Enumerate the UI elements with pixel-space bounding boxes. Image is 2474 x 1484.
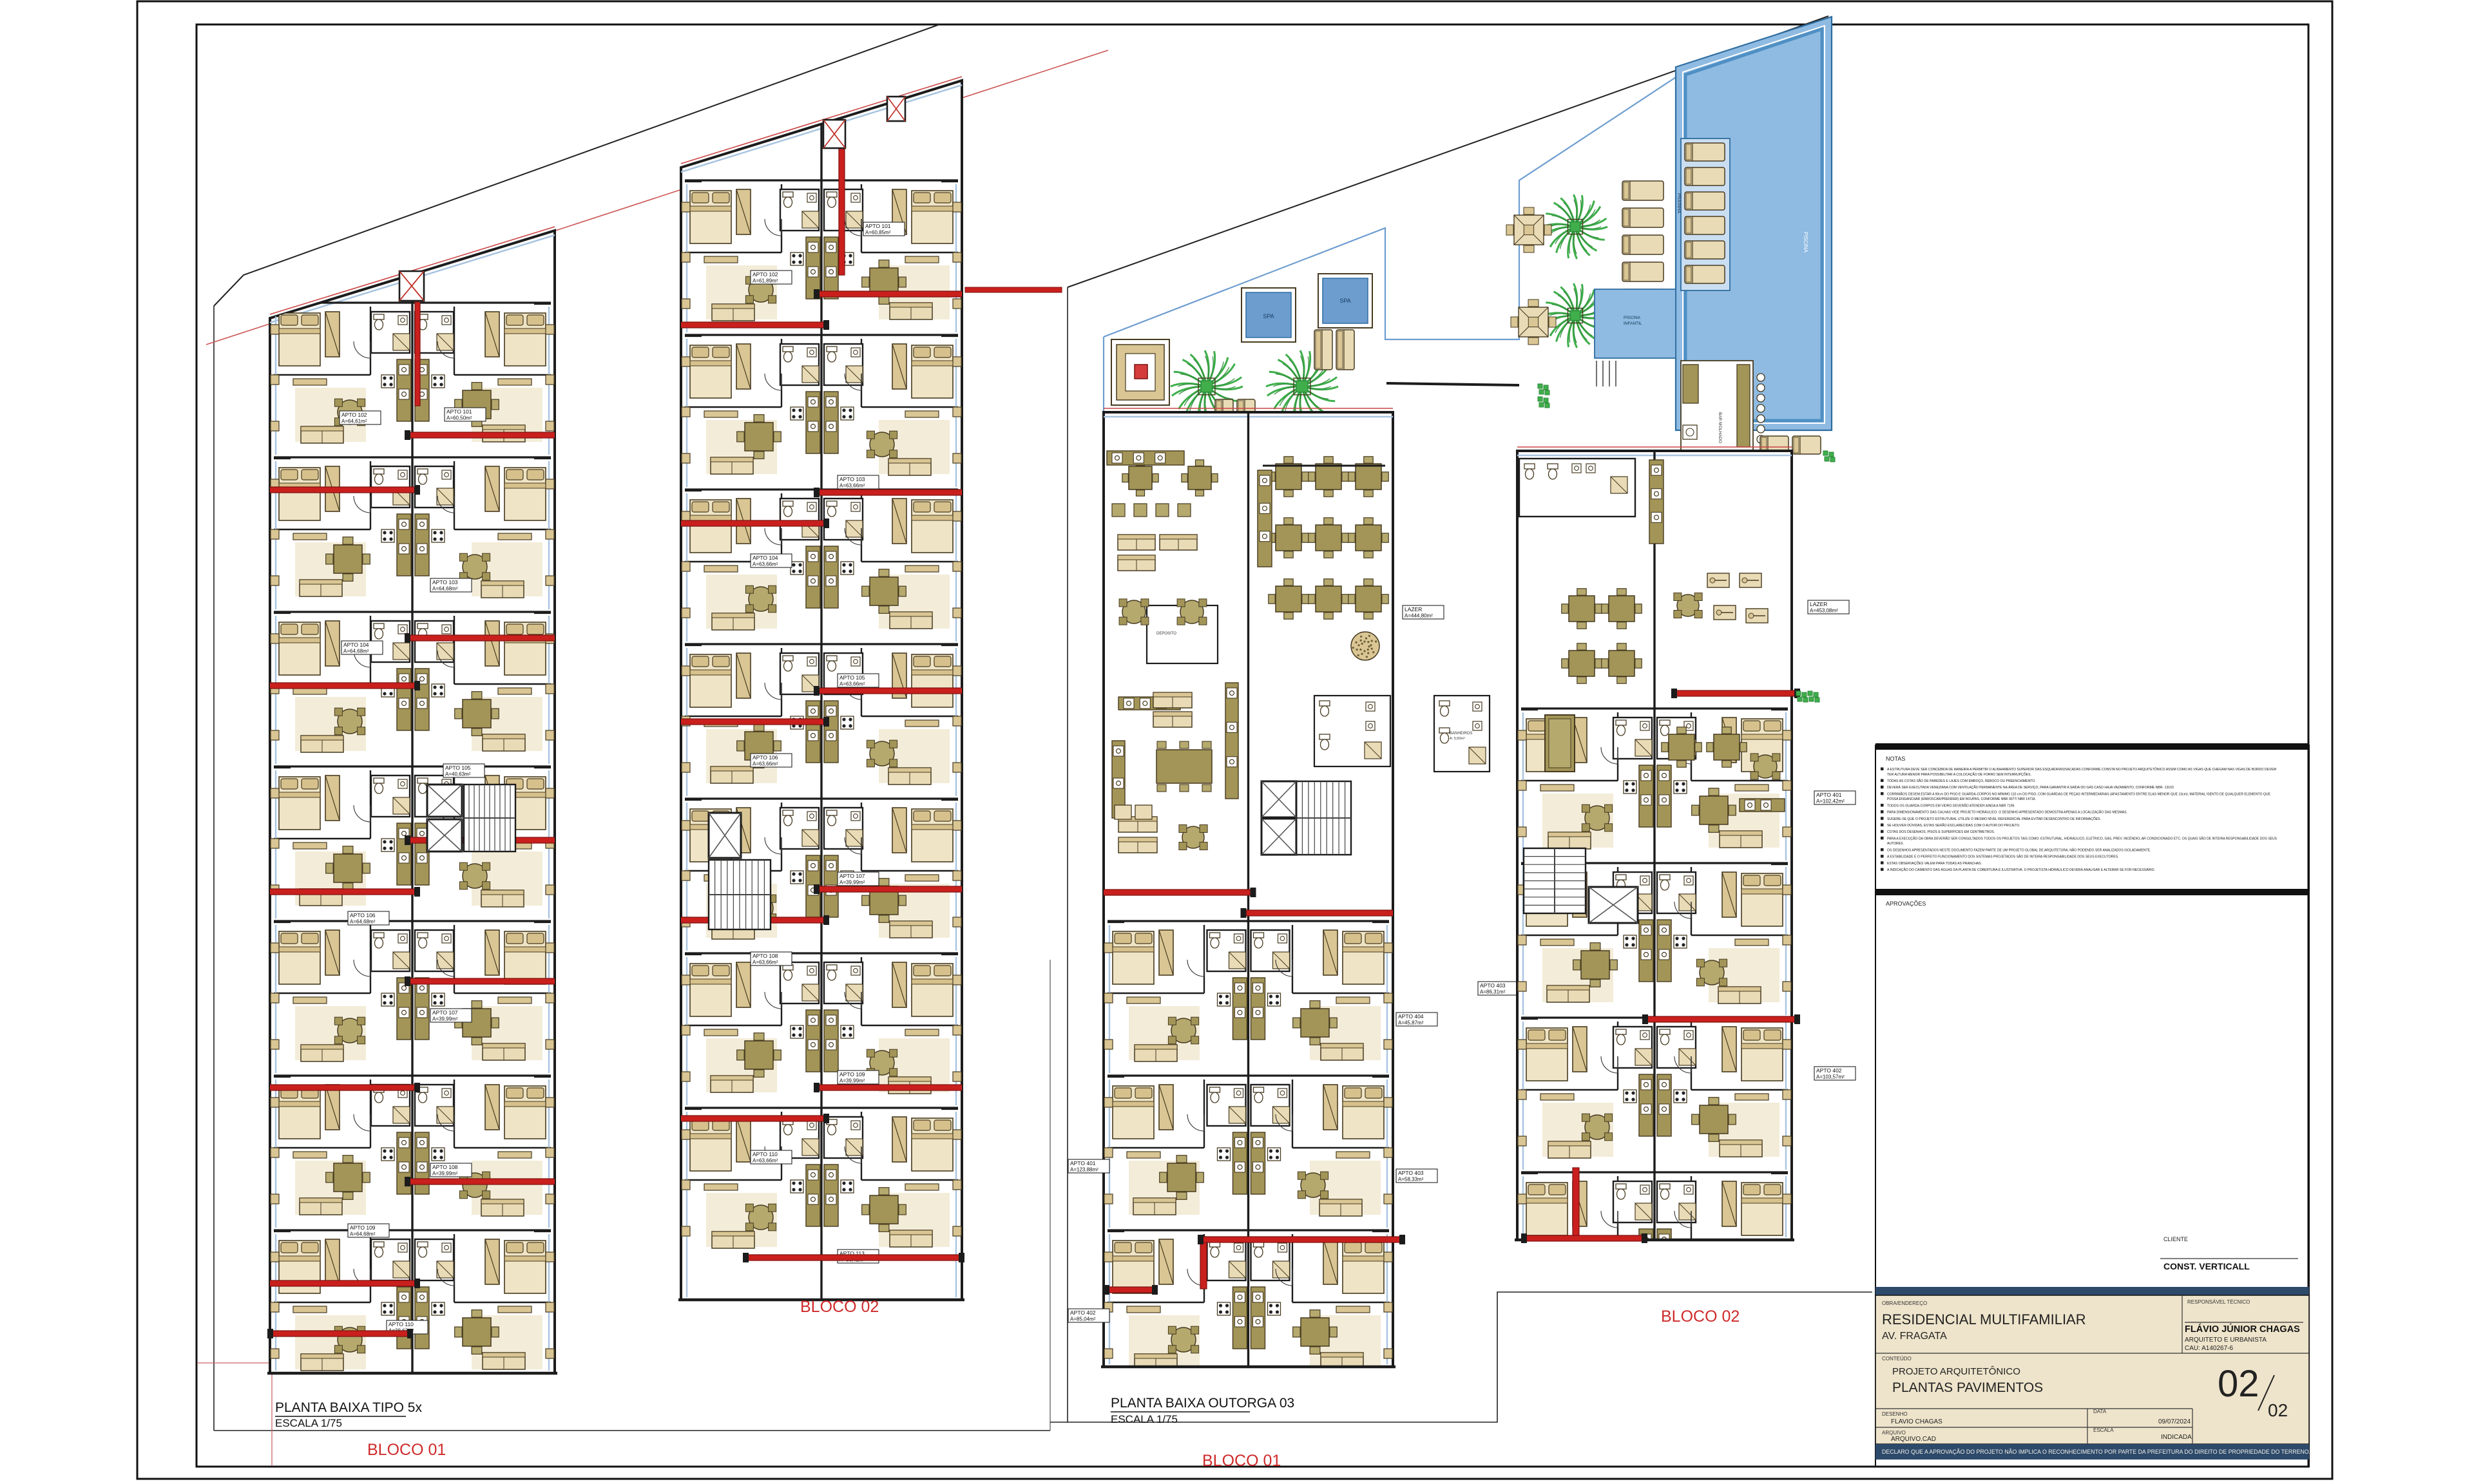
svg-text:APTO 404: APTO 404 [1398,1013,1424,1020]
svg-text:APTO 104: APTO 104 [343,642,369,648]
svg-text:APTO 101: APTO 101 [446,408,472,415]
svg-text:RESIDENCIAL MULTIFAMILIAR: RESIDENCIAL MULTIFAMILIAR [1882,1311,2086,1327]
svg-text:APTO 108: APTO 108 [753,953,778,959]
svg-text:INDICADA: INDICADA [2161,1434,2192,1441]
svg-text:CLIENTE: CLIENTE [2163,1236,2188,1242]
svg-text:A=45,87m²: A=45,87m² [1398,1020,1424,1026]
svg-text:LAZER: LAZER [1405,606,1422,613]
svg-text:POSSA ENGANCHAR (ENROSCAR/PREN: POSSA ENGANCHAR (ENROSCAR/PRENDER) EM RO… [1887,797,2036,801]
svg-text:CONTEÚDO: CONTEÚDO [1882,1356,1912,1362]
svg-text:PLANTA BAIXA TIPO 5x: PLANTA BAIXA TIPO 5x [275,1400,422,1415]
svg-text:APTO 401: APTO 401 [1816,792,1842,798]
svg-text:APTO 107: APTO 107 [839,873,865,879]
svg-text:A: 5,50m²: A: 5,50m² [1450,737,1465,741]
svg-text:CONST. VERTICALL: CONST. VERTICALL [2163,1261,2250,1271]
svg-text:PLANTAS PAVIMENTOS: PLANTAS PAVIMENTOS [1892,1380,2043,1395]
svg-text:PROJETO ARQUITETÔNICO: PROJETO ARQUITETÔNICO [1892,1366,2020,1377]
svg-text:A=64,61m²: A=64,61m² [341,419,367,424]
svg-text:APTO 401: APTO 401 [1070,1160,1096,1166]
svg-text:A=64,68m²: A=64,68m² [350,1232,376,1237]
svg-text:PISCINA: PISCINA [1803,232,1808,253]
svg-text:DESENHO: DESENHO [1882,1411,1908,1417]
svg-text:APROVAÇÕES: APROVAÇÕES [1886,900,1926,907]
svg-text:A=60,85m²: A=60,85m² [865,230,891,236]
svg-text:A=64,68m²: A=64,68m² [432,586,458,592]
svg-text:PARA DIMENSIONAMENTO DAS CALHA: PARA DIMENSIONAMENTO DAS CALHAS VIDE PRO… [1887,810,2127,815]
svg-text:A ESTRUTURA DEVE SER CONCEBIDA: A ESTRUTURA DEVE SER CONCEBIDA DE MANEIR… [1887,767,2276,772]
svg-text:A=64,68m²: A=64,68m² [343,649,369,654]
svg-text:OBRA/ENDEREÇO: OBRA/ENDEREÇO [1882,1300,1927,1306]
svg-text:BAR MOLHADO: BAR MOLHADO [1718,412,1722,443]
svg-text:AUTORES.: AUTORES. [1887,842,1904,846]
svg-text:A=63,66m²: A=63,66m² [839,483,865,489]
svg-text:BLOCO 01: BLOCO 01 [1202,1452,1281,1470]
svg-text:A=453,08m²: A=453,08m² [1810,608,1838,614]
svg-text:SPA: SPA [1339,298,1350,304]
svg-text:A=63,66m²: A=63,66m² [839,681,865,687]
svg-text:LAZER: LAZER [1810,601,1827,607]
svg-text:FLAVIO CHAGAS: FLAVIO CHAGAS [1891,1418,1942,1425]
svg-text:DECLARO QUE A APROVAÇÃO DO PRO: DECLARO QUE A APROVAÇÃO DO PROJETO NÃO I… [1882,1449,2310,1455]
svg-text:APTO 109: APTO 109 [839,1071,865,1078]
svg-text:AV. FRAGATA: AV. FRAGATA [1882,1331,1947,1342]
svg-text:A=103,57m²: A=103,57m² [1816,1074,1845,1080]
svg-text:02: 02 [2268,1400,2288,1420]
svg-text:ARQUIVO.CAD: ARQUIVO.CAD [1891,1436,1936,1443]
svg-text:APTO 109: APTO 109 [350,1224,376,1231]
svg-text:OS DESENHOS APRESENTADOS NEST: OS DESENHOS APRESENTADOS NESTE DOCUMENTO… [1887,848,2151,852]
svg-text:APTO 103: APTO 103 [839,476,865,482]
svg-text:COTAS DOS DESENHOS, PISOS E SU: COTAS DOS DESENHOS, PISOS E SUPERFÍCIES … [1887,830,1995,834]
svg-text:ARQUIVO: ARQUIVO [1882,1430,1906,1436]
svg-text:APTO 402: APTO 402 [1816,1067,1842,1074]
svg-text:APTO 110: APTO 110 [388,1321,414,1327]
svg-text:APTO 108: APTO 108 [432,1164,458,1170]
svg-text:CAU: A140267-6: CAU: A140267-6 [2185,1345,2233,1352]
svg-text:A=444,80m²: A=444,80m² [1405,613,1433,619]
svg-text:APTO 403: APTO 403 [1398,1170,1424,1176]
svg-text:SE HOUVER DÚVIDAS, ESTAS SERÃO: SE HOUVER DÚVIDAS, ESTAS SERÃO ESCLARECI… [1887,823,2020,828]
svg-text:SPA: SPA [1263,313,1274,319]
svg-text:09/07/2024: 09/07/2024 [2158,1418,2191,1425]
svg-text:BLOCO 02: BLOCO 02 [800,1298,879,1316]
svg-text:FLÁVIO JÚNIOR CHAGAS: FLÁVIO JÚNIOR CHAGAS [2185,1323,2300,1335]
svg-text:APTO 101: APTO 101 [865,223,891,229]
svg-text:A=40,63m²: A=40,63m² [445,772,471,777]
svg-text:APTO 107: APTO 107 [432,1009,458,1016]
svg-text:APTO 106: APTO 106 [350,912,376,918]
svg-text:A=123,88m²: A=123,88m² [1070,1167,1098,1173]
svg-text:DEVERÁ SER EXECUTADA VENEZIANA: DEVERÁ SER EXECUTADA VENEZIANA COM VENTI… [1887,785,2174,790]
svg-text:A=58,33m²: A=58,33m² [1398,1177,1424,1183]
svg-text:ARQUITETO E URBANISTA: ARQUITETO E URBANISTA [2185,1337,2267,1344]
svg-text:PISCINA: PISCINA [1624,316,1641,320]
svg-text:BLOCO 02: BLOCO 02 [1661,1308,1740,1326]
svg-text:A=39,99m²: A=39,99m² [839,1078,865,1084]
svg-text:A=63,66m²: A=63,66m² [753,1158,778,1164]
svg-text:A=61,89m²: A=61,89m² [753,278,778,284]
svg-text:APTO 105: APTO 105 [445,765,471,771]
svg-text:02: 02 [2218,1363,2259,1405]
svg-text:RESPONSÁVEL TÉCNICO: RESPONSÁVEL TÉCNICO [2187,1299,2250,1305]
svg-text:NOTAS: NOTAS [1886,756,1905,762]
svg-text:A=63,66m²: A=63,66m² [753,562,778,567]
svg-text:DATA: DATA [2093,1409,2107,1414]
svg-text:A=63,66m²: A=63,66m² [753,960,778,966]
svg-text:SUGERE-SE QUE O PROJETO ESTRUT: SUGERE-SE QUE O PROJETO ESTRUTURAL UTILI… [1887,817,2101,821]
svg-text:APTO 103: APTO 103 [432,579,458,585]
svg-text:ESCALA 1/75: ESCALA 1/75 [275,1417,342,1429]
svg-text:APTO 105: APTO 105 [839,674,865,681]
svg-text:BLOCO 01: BLOCO 01 [367,1441,446,1459]
svg-text:PARA A EXECUÇÃO DA OBRA DEVERÃ: PARA A EXECUÇÃO DA OBRA DEVERÃO SER CONS… [1887,835,2277,841]
svg-text:DEPOSITO: DEPOSITO [1156,632,1176,636]
svg-text:TODOS OS GUARDA-CORPOS EM VIDR: TODOS OS GUARDA-CORPOS EM VIDRO DEVERÃO … [1887,803,2015,808]
svg-text:APTO 106: APTO 106 [753,754,778,761]
svg-text:BANHEIROS: BANHEIROS [1450,732,1472,736]
svg-text:INFANTIL: INFANTIL [1624,321,1642,326]
svg-text:A=39,99m²: A=39,99m² [839,880,865,886]
svg-text:A=102,42m²: A=102,42m² [1816,799,1845,804]
svg-text:A INDICAÇÃO DO CAIMENTO DAS ÁG: A INDICAÇÃO DO CAIMENTO DAS ÁGUAS DA PLA… [1887,868,2155,872]
svg-text:A=39,99m²: A=39,99m² [432,1171,458,1177]
svg-text:APTO 104: APTO 104 [753,555,778,561]
svg-text:A ESTABILIDADE E O PERFEITO FU: A ESTABILIDADE E O PERFEITO FUNCIONAMENT… [1887,855,2119,859]
svg-text:APTO 402: APTO 402 [1070,1309,1096,1316]
svg-text:CORRIMÃOS DEVEM ESTAR A 90cm D: CORRIMÃOS DEVEM ESTAR A 90cm DO PISO E G… [1887,792,2271,796]
svg-text:A=64,68m²: A=64,68m² [350,919,376,925]
svg-text:APTO 110: APTO 110 [753,1151,778,1157]
svg-text:A=86,31m²: A=86,31m² [1480,989,1506,995]
svg-text:PLANTA BAIXA OUTORGA 03: PLANTA BAIXA OUTORGA 03 [1111,1396,1294,1411]
svg-text:A=39,99m²: A=39,99m² [432,1016,458,1022]
svg-text:APTO 102: APTO 102 [341,412,367,418]
svg-text:TODAS AS COTAS SÃO DE PAREDES: TODAS AS COTAS SÃO DE PAREDES E LAJES CO… [1887,779,2036,783]
svg-text:APTO 102: APTO 102 [753,271,778,278]
svg-text:APTO 403: APTO 403 [1480,982,1506,989]
svg-text:A=85,04m²: A=85,04m² [1070,1317,1096,1322]
svg-text:A=63,66m²: A=63,66m² [753,761,778,767]
svg-text:ESTAS OBSERVAÇÕES VALEM PARA T: ESTAS OBSERVAÇÕES VALEM PARA TODAS AS PR… [1887,861,1982,866]
svg-text:TER ALTURA MENOR PARA POSSIBIL: TER ALTURA MENOR PARA POSSIBILITAR A COL… [1887,772,2031,777]
svg-text:PRAINHA: PRAINHA [1676,193,1681,213]
svg-text:A=60,50m²: A=60,50m² [446,415,472,421]
svg-text:ESCALA 1/75: ESCALA 1/75 [1111,1413,1178,1425]
svg-text:ESCALA: ESCALA [2093,1427,2114,1433]
